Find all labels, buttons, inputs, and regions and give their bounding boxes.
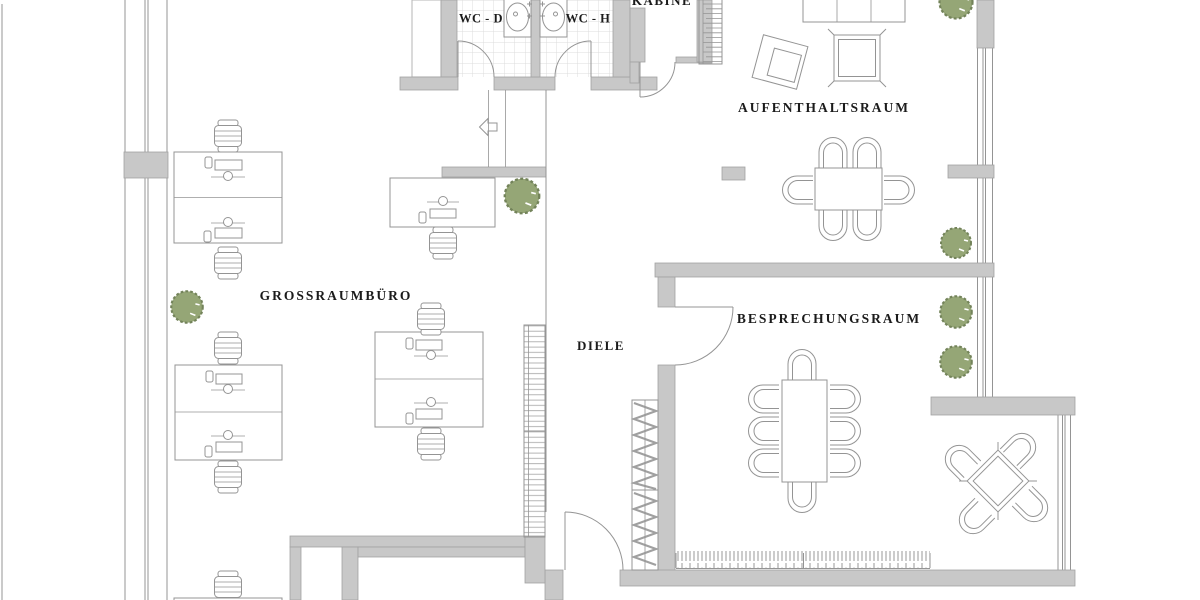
workstation-single <box>390 178 495 259</box>
room-label-wc-d: WC - D <box>459 12 503 27</box>
doors <box>458 41 733 570</box>
floor-plan: WC - D WC - H KABINE AUFENTHALTSRAUM GRO… <box>0 0 1200 600</box>
armchair <box>752 35 808 89</box>
room-label-diele: DIELE <box>577 338 625 354</box>
room-label-aufenthaltsraum: AUFENTHALTSRAUM <box>738 100 910 116</box>
wardrobe <box>632 400 658 570</box>
room-label-grossraumbuero: GROSSRAUMBÜRO <box>260 288 413 304</box>
workstation-partial-bottom <box>174 571 282 600</box>
alcove-table-group <box>939 427 1053 539</box>
sofa <box>803 0 905 22</box>
floor-plan-drawing <box>0 0 1200 600</box>
west-window-wall <box>124 0 168 600</box>
workstation-cluster-2 <box>175 332 282 493</box>
workstation-cluster-1 <box>174 120 282 279</box>
entrance-door <box>565 512 623 570</box>
room-label-besprechungsraum: BESPRECHUNGSRAUM <box>737 311 921 327</box>
side-table <box>828 29 886 87</box>
workstation-cluster-3 <box>375 303 483 460</box>
room-label-wc-h: WC - H <box>566 12 611 27</box>
shaft <box>412 0 441 77</box>
conference-table-group <box>749 350 861 513</box>
east-window-wall <box>948 0 994 397</box>
alcove-window-wall <box>1058 415 1071 570</box>
besprechungsraum-door <box>675 307 733 365</box>
dining-table-group <box>783 138 915 241</box>
shelf-unit <box>524 325 545 537</box>
radiator <box>676 551 930 569</box>
room-label-kabine: KABINE <box>632 0 692 9</box>
